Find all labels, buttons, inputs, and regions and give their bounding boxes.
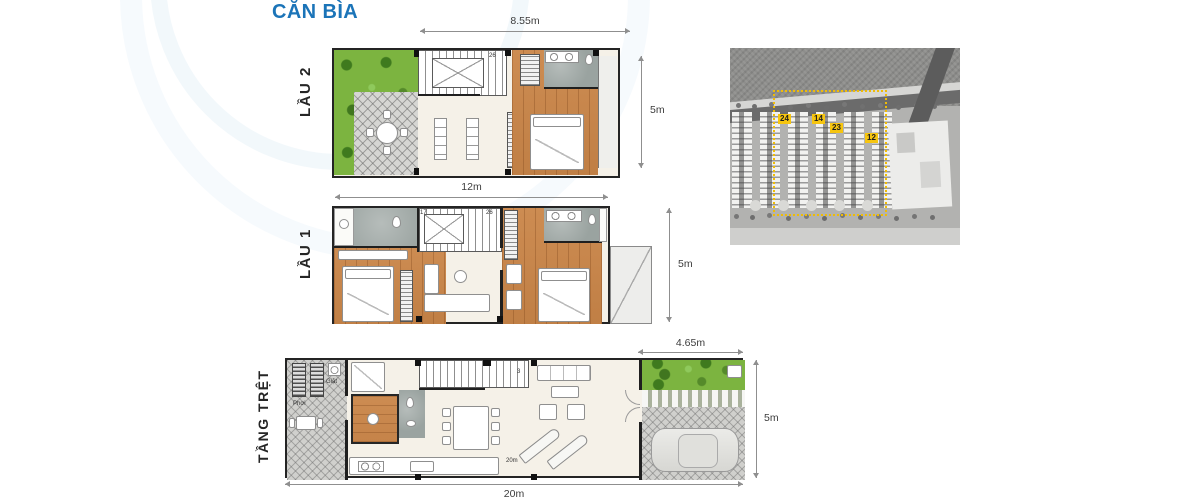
site-map: 24 14 23 12 xyxy=(730,48,960,245)
blanket-fold xyxy=(354,365,382,389)
block-badge-14: 14 xyxy=(812,114,825,124)
wardrobe xyxy=(520,54,540,86)
dim-label-lau2-width: 8.55m xyxy=(420,15,630,27)
drying-rack xyxy=(310,363,324,397)
floor-plan-lau1: 17 26 xyxy=(332,206,610,324)
drying-label: Phơi xyxy=(293,401,306,408)
highlight-boundary xyxy=(773,90,887,216)
kitchen-sink xyxy=(358,461,384,472)
pillow xyxy=(541,271,587,281)
toilet xyxy=(367,413,379,425)
round-table xyxy=(376,122,398,144)
column-block xyxy=(415,360,421,366)
toilet xyxy=(585,54,593,65)
coffee-table xyxy=(454,270,467,283)
dim-label-garage-width: 4.65m xyxy=(638,337,743,349)
block-badge-12: 12 xyxy=(865,133,878,143)
floor-label-lau2: LẦU 2 xyxy=(296,52,316,132)
dim-label-lau1-width: 12m xyxy=(335,181,608,193)
toilet xyxy=(406,397,414,408)
column-block xyxy=(416,316,422,322)
staircase xyxy=(419,360,529,388)
stair-step-number: 3 xyxy=(517,369,520,376)
dim-label-lau1-depth: 5m xyxy=(678,258,693,270)
blanket-fold xyxy=(543,293,585,315)
column-block xyxy=(415,474,421,480)
block-badge-23: 23 xyxy=(830,123,843,133)
floor-plan-lau2: 26 xyxy=(332,48,620,178)
wardrobe xyxy=(400,270,413,322)
master-bathroom xyxy=(544,50,598,88)
double-sink xyxy=(546,210,582,222)
floor-label-lau1: LẦU 1 xyxy=(296,215,316,293)
block-badge-24: 24 xyxy=(778,114,791,124)
armchair xyxy=(506,290,522,310)
bathroom-wood-floor xyxy=(351,394,399,444)
wardrobe xyxy=(504,210,518,260)
door-arc xyxy=(625,407,640,422)
column-block xyxy=(531,360,537,366)
gym-bench xyxy=(466,118,479,160)
dim-label-tret-width: 20m xyxy=(285,488,743,500)
wc xyxy=(399,390,425,438)
front-road xyxy=(730,228,960,245)
sofa xyxy=(537,365,591,381)
washing-machine xyxy=(328,363,341,376)
chair xyxy=(491,436,500,445)
dim-arrow-lau1-depth xyxy=(669,208,670,322)
dim-arrow-garage-width xyxy=(638,352,743,353)
sink xyxy=(406,420,416,427)
column-block xyxy=(593,50,599,56)
column-block xyxy=(505,169,511,175)
armchair xyxy=(506,264,522,284)
sofa-side xyxy=(424,264,439,294)
tree-row xyxy=(736,103,741,108)
car xyxy=(651,428,739,472)
stair-landing-wall xyxy=(483,360,491,366)
wall xyxy=(418,94,480,96)
drying-rack xyxy=(292,363,306,397)
stair-step-number: 26 xyxy=(489,53,496,60)
wall xyxy=(345,420,348,480)
dim-arrow-lau1-width xyxy=(335,197,608,198)
wall xyxy=(544,87,598,89)
bathroom-right xyxy=(544,208,602,242)
bed xyxy=(351,362,385,392)
sofa xyxy=(424,294,490,312)
dim-arrow-tret-depth xyxy=(756,360,757,478)
rowhouse-block xyxy=(732,112,752,208)
toilet xyxy=(588,214,596,225)
chair xyxy=(491,408,500,417)
car-cabin xyxy=(678,434,718,468)
pillow xyxy=(345,269,391,279)
utility-box xyxy=(727,365,742,378)
stove xyxy=(410,461,434,472)
blanket-fold xyxy=(535,139,579,163)
wall xyxy=(544,241,602,243)
column-block xyxy=(531,474,537,480)
chair xyxy=(383,110,391,119)
closet xyxy=(334,208,354,246)
pillow xyxy=(533,117,581,127)
chair xyxy=(442,436,451,445)
gym-bench xyxy=(434,118,447,160)
stair-landing xyxy=(432,58,484,88)
floorplan-sheet: CĂN BÌA LẦU 2 8.55m 5m 26 xyxy=(0,0,1200,500)
door-arc xyxy=(625,390,640,405)
wall xyxy=(345,360,348,396)
dresser xyxy=(338,250,408,260)
bed xyxy=(538,268,590,322)
stair-landing xyxy=(424,214,464,244)
armchair xyxy=(539,404,557,420)
chair xyxy=(442,422,451,431)
chair xyxy=(289,418,295,428)
balcony xyxy=(598,56,617,168)
cul-de-sac xyxy=(750,200,761,211)
wall xyxy=(500,208,503,248)
column-block xyxy=(505,50,511,56)
chair xyxy=(366,128,374,137)
page-title: CĂN BÌA xyxy=(272,1,358,24)
dining-table xyxy=(453,406,489,450)
dim-arrow-lau2-depth xyxy=(641,56,642,168)
floor-label-tret: TẦNG TRỆT xyxy=(253,362,273,470)
bed xyxy=(530,114,584,170)
chair xyxy=(400,128,408,137)
dim-label-lau2-depth: 5m xyxy=(650,104,665,116)
chair xyxy=(383,146,391,155)
stair-step-number: 26 xyxy=(486,210,493,217)
column-block xyxy=(414,168,419,175)
double-sink xyxy=(545,51,579,63)
dim-label-tret-depth: 5m xyxy=(764,412,779,424)
paver-walkway xyxy=(642,390,745,407)
terrace xyxy=(354,92,418,175)
chair xyxy=(317,418,323,428)
wall xyxy=(419,388,485,390)
chair xyxy=(442,408,451,417)
kitchen-counter xyxy=(349,457,499,475)
chair xyxy=(491,422,500,431)
clubhouse-building xyxy=(888,120,952,209)
wash-basin xyxy=(339,219,349,229)
blanket-fold xyxy=(347,293,389,315)
laundry-label: Giặt xyxy=(326,379,337,386)
patio-table xyxy=(296,416,316,430)
closet xyxy=(599,208,607,242)
garage-note: 20m xyxy=(506,458,518,465)
stair-step-number: 17 xyxy=(420,210,427,217)
bed xyxy=(342,266,394,322)
building-wing xyxy=(920,161,941,188)
tree-row xyxy=(734,214,739,219)
coffee-table xyxy=(551,386,579,398)
dim-arrow-tret-width xyxy=(285,484,743,485)
column-block xyxy=(414,50,419,57)
floor-plan-tret: Giặt Phơi 3 xyxy=(285,358,743,478)
balcony-lau1 xyxy=(610,246,652,324)
toilet xyxy=(392,216,401,228)
dim-arrow-lau2-width xyxy=(420,31,630,32)
column-block xyxy=(497,316,503,322)
armchair xyxy=(567,404,585,420)
building-wing xyxy=(896,132,915,153)
